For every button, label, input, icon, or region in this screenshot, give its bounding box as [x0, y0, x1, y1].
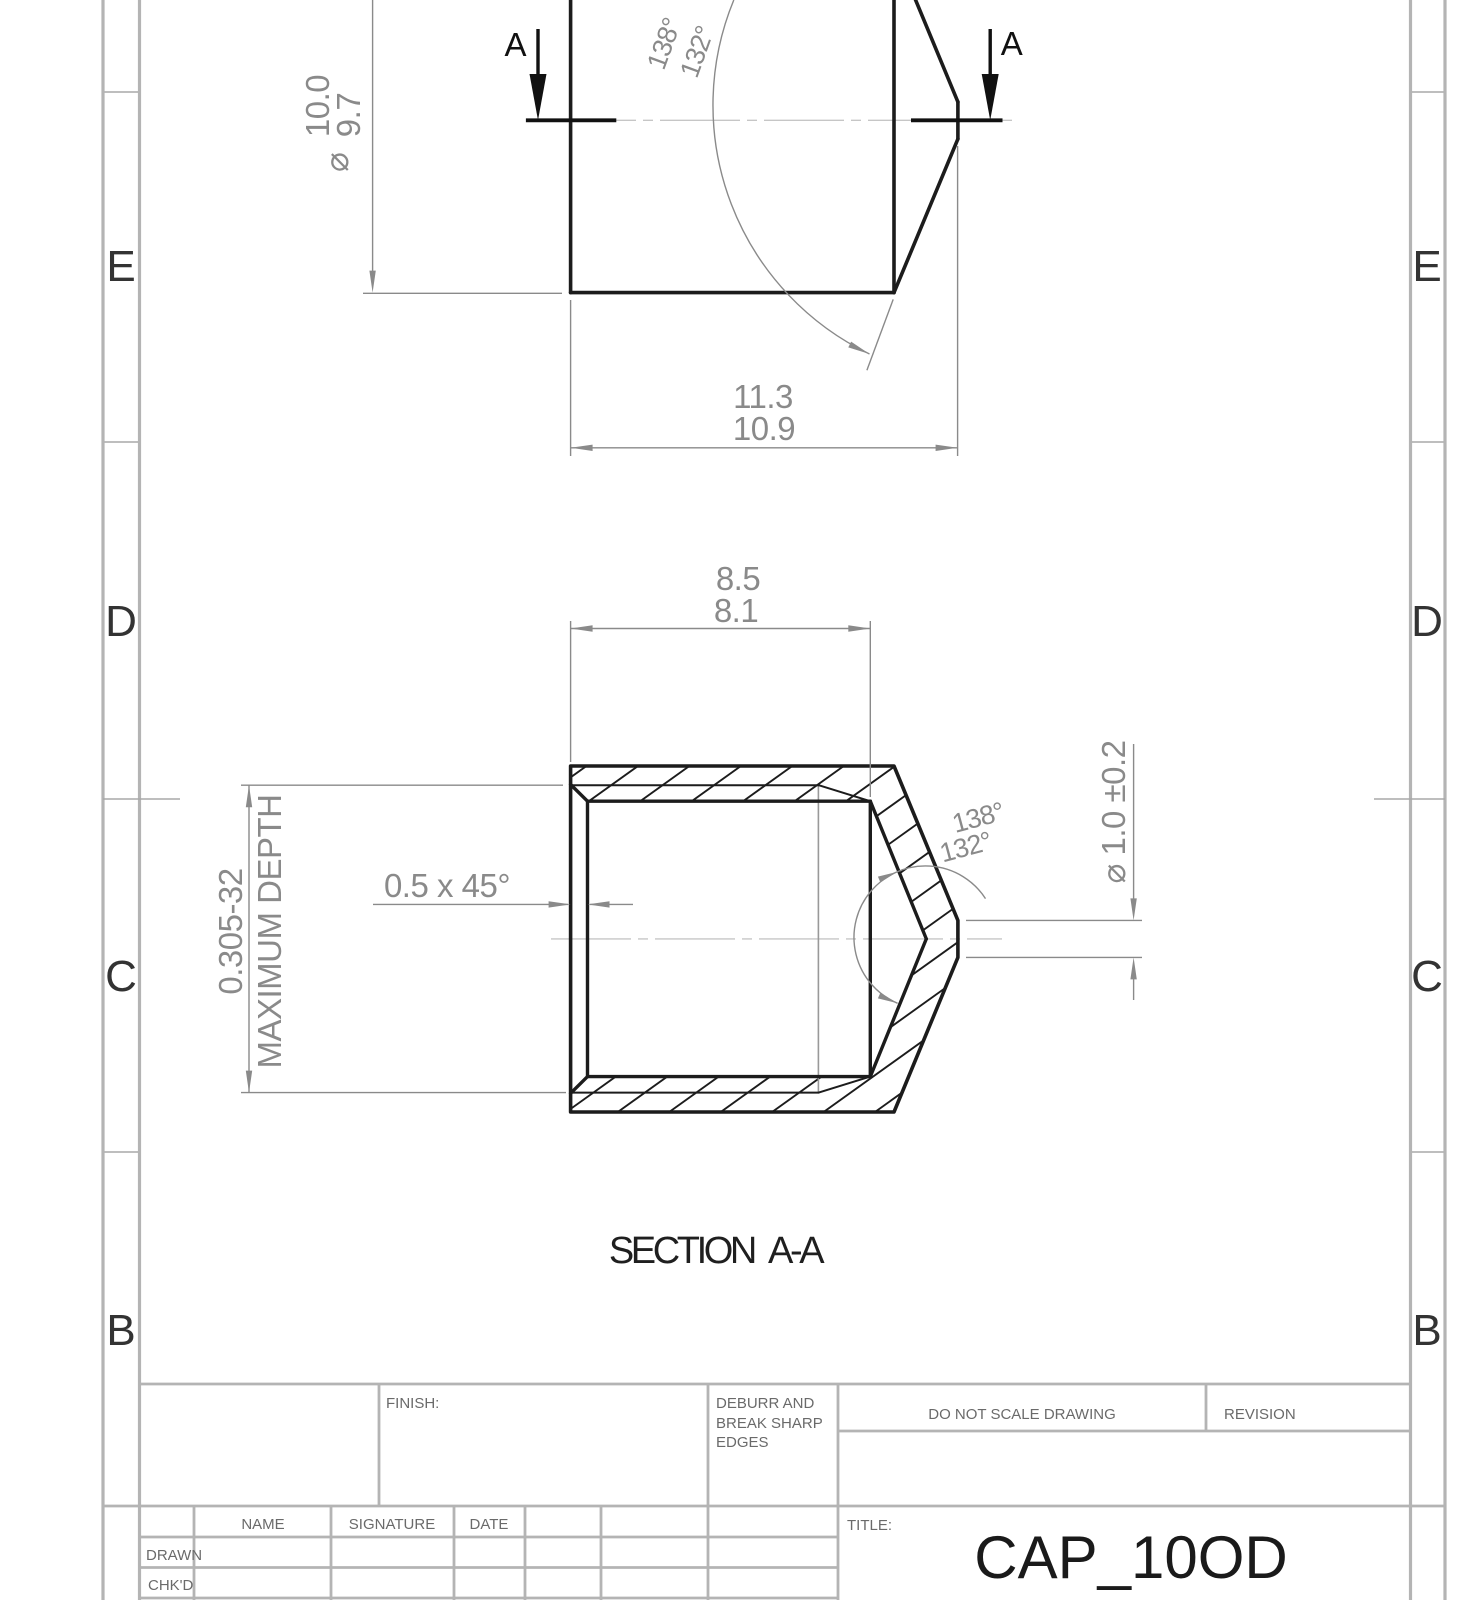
- svg-text:DATE: DATE: [470, 1516, 509, 1533]
- svg-text:0.305-32: 0.305-32: [212, 868, 249, 994]
- svg-text:A: A: [504, 26, 526, 63]
- svg-text:DO NOT SCALE DRAWING: DO NOT SCALE DRAWING: [928, 1406, 1116, 1423]
- svg-text:D: D: [1411, 597, 1443, 646]
- svg-text:CAP_10OD: CAP_10OD: [974, 1524, 1287, 1591]
- svg-text:SIGNATURE: SIGNATURE: [349, 1516, 435, 1533]
- svg-text:SECTION A-A: SECTION A-A: [609, 1230, 825, 1272]
- svg-text:B: B: [1412, 1306, 1441, 1355]
- svg-text:⌀: ⌀: [318, 153, 355, 172]
- svg-text:EDGES: EDGES: [716, 1434, 769, 1451]
- svg-text:MAXIMUM DEPTH: MAXIMUM DEPTH: [251, 795, 288, 1069]
- svg-text:⌀ 1.0 ±0.2: ⌀ 1.0 ±0.2: [1095, 740, 1132, 883]
- svg-text:10.9: 10.9: [733, 410, 795, 447]
- svg-text:CHK'D: CHK'D: [148, 1577, 194, 1594]
- svg-text:8.1: 8.1: [714, 592, 758, 629]
- svg-text:FINISH:: FINISH:: [386, 1395, 439, 1412]
- svg-text:C: C: [1411, 952, 1443, 1001]
- svg-text:DEBURR AND: DEBURR AND: [716, 1395, 815, 1412]
- svg-text:0.5 x 45°: 0.5 x 45°: [384, 867, 510, 904]
- svg-text:REVISION: REVISION: [1224, 1406, 1296, 1423]
- svg-text:DRAWN: DRAWN: [146, 1547, 202, 1564]
- svg-text:NAME: NAME: [241, 1516, 284, 1533]
- svg-text:C: C: [105, 952, 137, 1001]
- svg-text:A: A: [1001, 25, 1023, 62]
- svg-text:E: E: [106, 242, 135, 291]
- svg-text:BREAK SHARP: BREAK SHARP: [716, 1415, 823, 1432]
- svg-text:D: D: [105, 597, 137, 646]
- svg-text:E: E: [1412, 242, 1441, 291]
- svg-text:TITLE:: TITLE:: [847, 1517, 892, 1534]
- svg-text:9.7: 9.7: [330, 93, 367, 137]
- svg-text:B: B: [106, 1306, 135, 1355]
